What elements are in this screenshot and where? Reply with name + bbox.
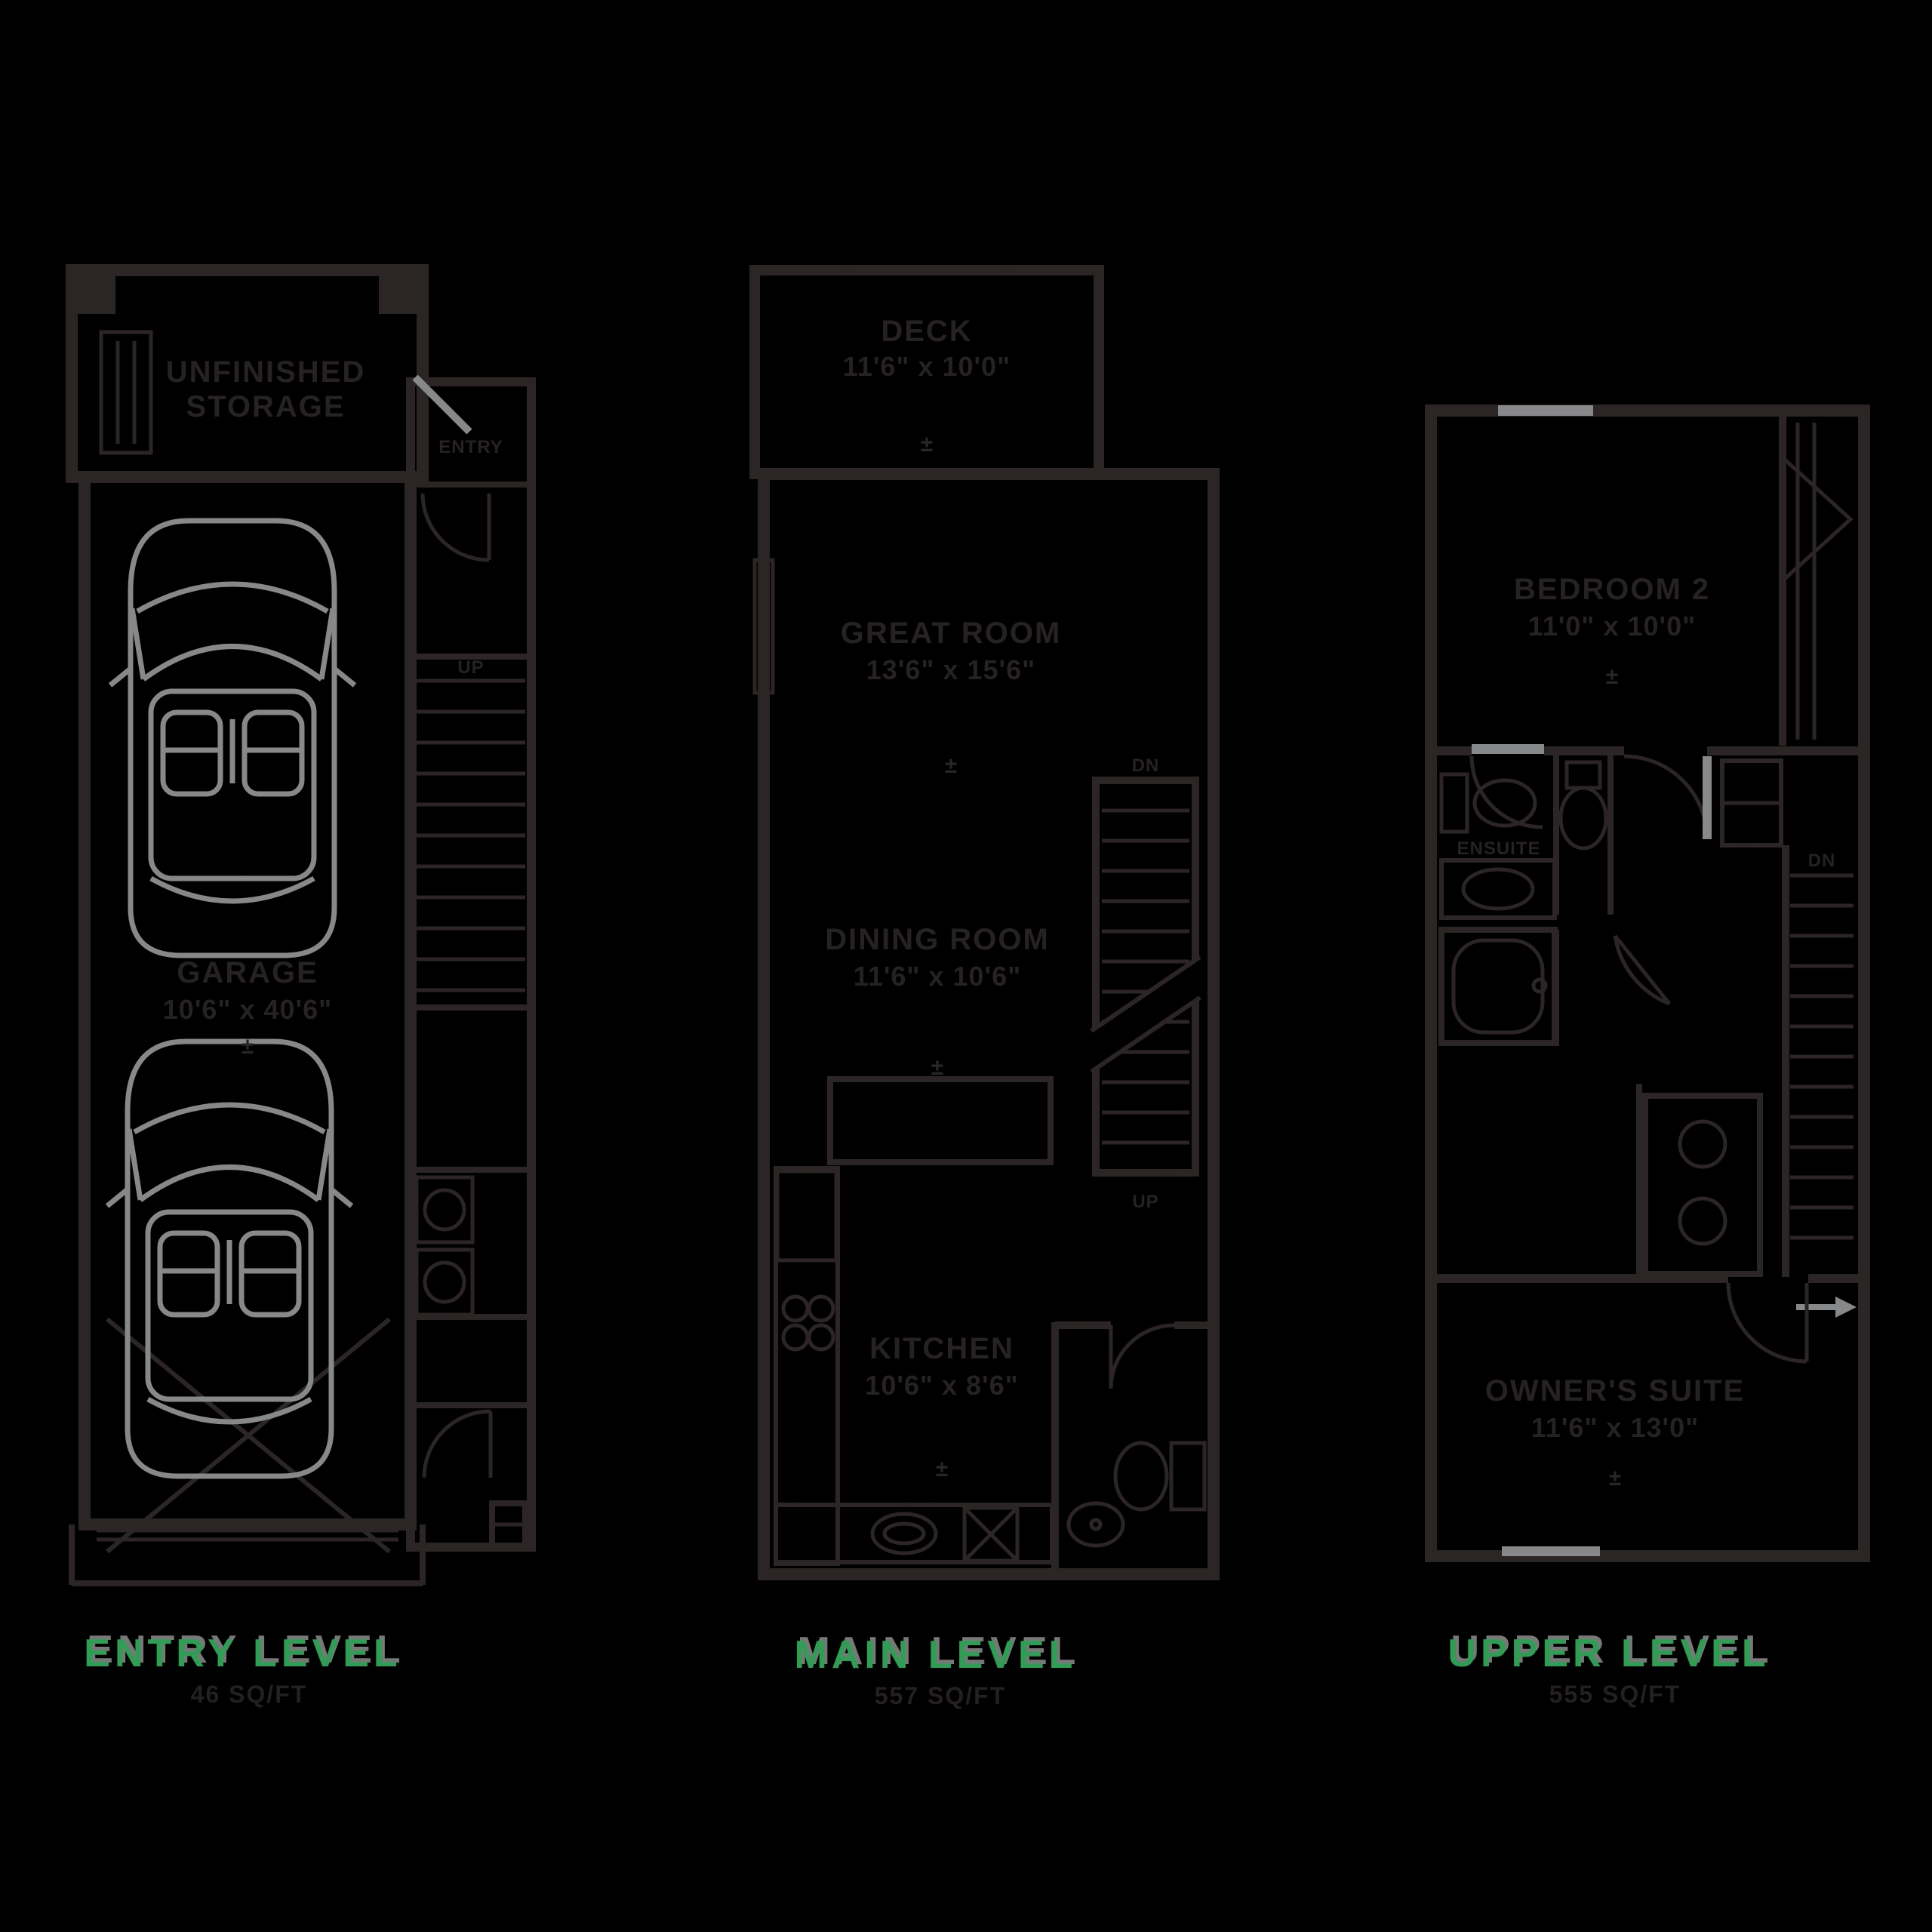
hall-door-arc (1624, 756, 1707, 839)
fridge (777, 1171, 836, 1260)
range-burners (783, 1297, 833, 1349)
exterior-post (492, 1503, 525, 1546)
garage-dims: 10'6" x 40'6" (163, 994, 332, 1025)
dining-room-name: DINING ROOM (825, 923, 1050, 956)
wall-post (72, 270, 115, 314)
entry-stairs: UP (417, 657, 525, 990)
entry-stair-column: ENTRY UP (411, 377, 531, 1547)
garage-name: GARAGE (177, 956, 318, 989)
linen-closet (1722, 761, 1781, 845)
upper-level-title: UPPER LEVEL (1447, 1632, 1770, 1675)
deck-tolerance: ± (921, 432, 933, 457)
upper-stairs: DN (1786, 845, 1857, 1318)
powder-sink (1069, 1503, 1123, 1546)
deck-dims: 11'6" x 10'0" (843, 351, 1011, 382)
bath-door-leaf-gray (1472, 744, 1544, 754)
kitchen-island (830, 1079, 1051, 1162)
deck-name: DECK (881, 315, 972, 348)
storage-label-line1: UNFINISHED (166, 355, 365, 389)
kitchen-room: KITCHEN 10'6" x 8'6" ± (776, 1079, 1052, 1564)
entry-level-area: 46 SQ/FT (191, 1681, 308, 1708)
bedroom2-tolerance: ± (1606, 664, 1618, 689)
main-level-area: 557 SQ/FT (875, 1682, 1007, 1709)
car-2 (107, 1041, 352, 1476)
upper-level-area: 555 SQ/FT (1549, 1681, 1681, 1708)
entry-label: ENTRY (438, 437, 503, 457)
kitchen-name: KITCHEN (869, 1332, 1014, 1365)
vanity-sink (1441, 860, 1555, 918)
bedroom2-room: BEDROOM 2 11'0" x 10'0" ± (1514, 417, 1850, 746)
main-level-plan: DECK 11'6" x 10'0" ± GREAT ROOM 13'6" x … (755, 270, 1214, 1709)
garage-room: GARAGE 10'6" x 40'6" ± (72, 477, 423, 1585)
bedroom2-dims: 11'0" x 10'0" (1528, 611, 1696, 641)
stairs-dn-label: DN (1132, 755, 1160, 776)
ensuite-label: ENSUITE (1457, 838, 1540, 859)
owners-suite-name: OWNER'S SUITE (1485, 1374, 1745, 1407)
suite-window-gray (1502, 1546, 1600, 1556)
deck-room: DECK 11'6" x 10'0" ± (755, 270, 1099, 488)
kitchen-tolerance: ± (936, 1457, 948, 1481)
garage-man-door (424, 1411, 491, 1478)
kitchen-sink (872, 1514, 936, 1553)
stairs-up-label: UP (457, 657, 484, 678)
toilet (1115, 1443, 1204, 1509)
entry-level-caption: ENTRY LEVEL ENTRY LEVEL 46 SQ/FT (84, 1628, 405, 1708)
dining-room-dims: 11'6" x 10'6" (854, 961, 1021, 992)
suite-door (1728, 1283, 1807, 1361)
great-room-name: GREAT ROOM (841, 617, 1062, 650)
water-closet (1556, 751, 1611, 915)
bathtub (1441, 930, 1555, 1043)
kitchen-dims: 10'6" x 8'6" (865, 1370, 1018, 1401)
powder-door (1111, 1325, 1174, 1389)
main-level-title: MAIN LEVEL (795, 1633, 1078, 1677)
water-heater-icon (101, 332, 151, 453)
storage-label-line2: STORAGE (186, 390, 345, 423)
bedroom-window-gray (1498, 405, 1593, 416)
owners-suite-tolerance: ± (1609, 1466, 1621, 1491)
entry-level-title: ENTRY LEVEL (84, 1632, 401, 1675)
wall-post (379, 270, 423, 314)
double-vanity (1639, 1084, 1760, 1277)
hall-door (1556, 930, 1669, 1046)
floorplan-canvas: UNFINISHED STORAGE GARAGE 10'6" x 40'6" … (0, 0, 1932, 1932)
owners-suite-room: OWNER'S SUITE 11'6" x 13'0" ± (1431, 1278, 1864, 1556)
storage-room: UNFINISHED STORAGE (72, 270, 423, 477)
entry-door (423, 494, 489, 560)
great-room-dims: 13'6" x 15'6" (866, 654, 1035, 685)
powder-room (1055, 1322, 1207, 1574)
closet-bifold-door (1786, 460, 1850, 578)
ensuite-bath: ENSUITE (1441, 774, 1555, 1043)
stair-break (1091, 957, 1200, 1072)
stairs-up-label: UP (1132, 1192, 1158, 1212)
washer-dryer (417, 1177, 472, 1315)
left-window (755, 560, 773, 693)
bedroom2-name: BEDROOM 2 (1514, 573, 1710, 606)
car-1 (110, 521, 355, 955)
owners-suite-dims: 11'6" x 13'0" (1531, 1412, 1699, 1443)
great-room-tolerance: ± (945, 753, 957, 778)
hall-door-leaf-gray (1703, 756, 1712, 839)
garage-tolerance: ± (241, 1034, 254, 1059)
upper-level-plan: BEDROOM 2 11'0" x 10'0" ± ENSUITE (1431, 405, 1864, 1708)
entry-level-plan: UNFINISHED STORAGE GARAGE 10'6" x 40'6" … (72, 270, 531, 1708)
main-level-caption: MAIN LEVEL MAIN LEVEL 557 SQ/FT (795, 1629, 1081, 1709)
dishwasher (964, 1508, 1017, 1561)
main-stairs: DN UP (1091, 755, 1200, 1212)
floorplan-svg: UNFINISHED STORAGE GARAGE 10'6" x 40'6" … (0, 0, 1932, 1932)
upper-level-caption: UPPER LEVEL UPPER LEVEL 555 SQ/FT (1447, 1628, 1773, 1708)
closet-shelves (1798, 423, 1814, 740)
stairs-dn-label: DN (1808, 851, 1836, 871)
